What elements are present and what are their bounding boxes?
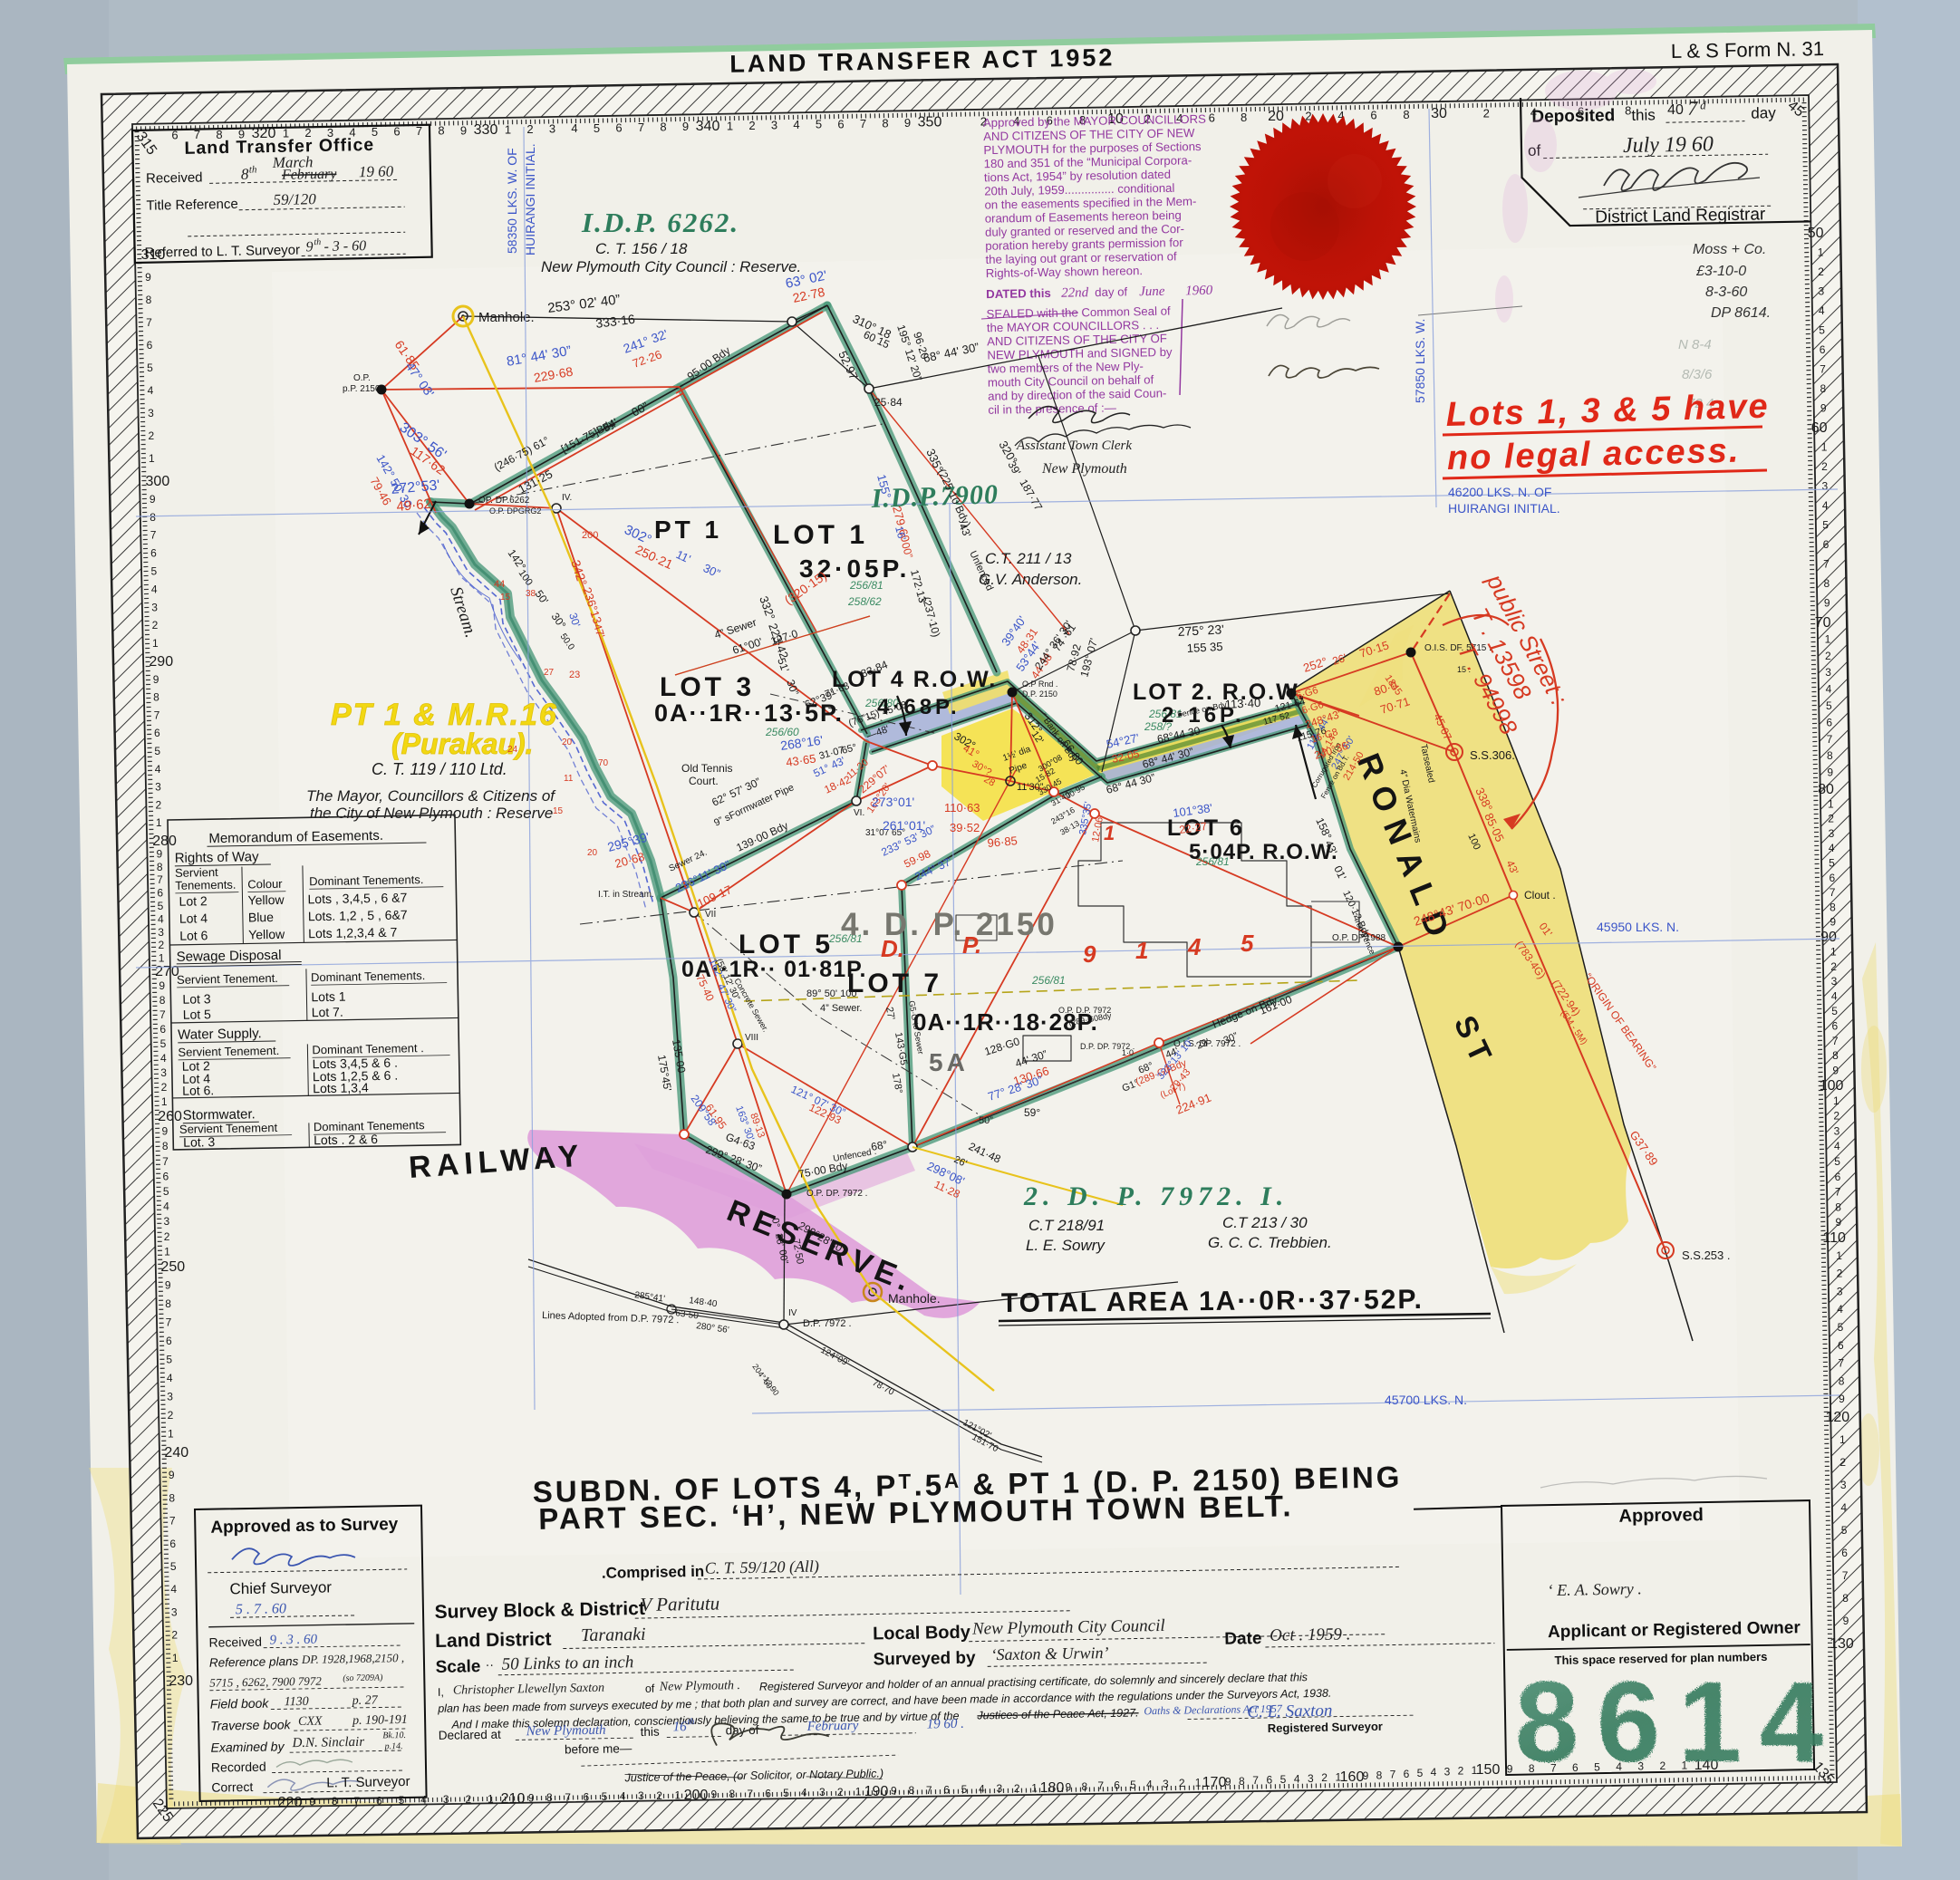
svg-text:5: 5 <box>1280 1773 1287 1786</box>
svg-text:4: 4 <box>1831 990 1838 1003</box>
svg-text:15: 15 <box>500 593 511 603</box>
svg-text:2: 2 <box>1458 1765 1464 1778</box>
svg-text:1: 1 <box>1825 632 1831 645</box>
svg-text:2: 2 <box>526 122 533 136</box>
svg-text:5: 5 <box>163 1185 169 1198</box>
svg-text:4: 4 <box>1819 304 1825 317</box>
svg-text:Received: Received <box>146 170 203 187</box>
svg-text:‘ E. A. Sowry .: ‘ E. A. Sowry . <box>1547 1579 1642 1599</box>
svg-text:5: 5 <box>602 1790 608 1803</box>
svg-text:4: 4 <box>1826 683 1832 696</box>
svg-text:4: 4 <box>571 121 577 135</box>
svg-text:Rights-of-Way shown hereon.: Rights-of-Way shown hereon. <box>986 264 1143 280</box>
svg-text:2: 2 <box>1830 960 1837 973</box>
svg-text:C. L. Saxton: C. L. Saxton <box>1247 1702 1332 1722</box>
svg-text:Colour: Colour <box>247 877 283 892</box>
svg-text:9: 9 <box>1843 1615 1849 1627</box>
svg-text:5: 5 <box>1826 699 1832 712</box>
svg-text:I.D.P. 6262.: I.D.P. 6262. <box>581 207 739 238</box>
svg-text:District Land Registrar: District Land Registrar <box>1595 205 1766 227</box>
svg-text:New Plymouth .: New Plymouth . <box>659 1679 740 1694</box>
svg-text:p.P. 2150: p.P. 2150 <box>343 384 381 394</box>
svg-text:5·04P. R.O.W.: 5·04P. R.O.W. <box>1189 840 1338 864</box>
svg-text:150: 150 <box>1476 1762 1501 1778</box>
svg-text:Blue: Blue <box>248 910 275 924</box>
svg-text:IV.: IV. <box>562 493 572 503</box>
svg-text:7: 7 <box>1687 97 1698 120</box>
svg-text:.Comprised in: .Comprised in <box>602 1563 705 1582</box>
svg-text:6: 6 <box>154 727 160 739</box>
svg-text:8: 8 <box>882 116 888 130</box>
svg-text:9: 9 <box>309 1796 315 1808</box>
svg-text:6: 6 <box>166 1335 172 1347</box>
svg-text:330: 330 <box>474 122 498 138</box>
svg-text:9: 9 <box>1830 916 1836 929</box>
svg-text:G. C. C. Trebbien.: G. C. C. Trebbien. <box>1208 1234 1332 1251</box>
svg-text:275° 23': 275° 23' <box>1177 622 1224 639</box>
svg-text:8: 8 <box>1839 1374 1845 1387</box>
svg-text:59/120: 59/120 <box>273 190 316 208</box>
svg-text:258/62: 258/62 <box>847 595 882 608</box>
svg-text:7: 7 <box>150 529 157 542</box>
svg-text:February: February <box>806 1719 859 1734</box>
svg-text:9: 9 <box>1839 1393 1845 1405</box>
svg-text:3: 3 <box>1840 1479 1847 1491</box>
svg-text:50: 50 <box>1808 226 1824 241</box>
svg-text:28': 28' <box>773 1232 786 1247</box>
svg-text:5: 5 <box>961 1783 968 1796</box>
svg-text:273°01': 273°01' <box>872 795 914 809</box>
svg-text:O.P. DPGRG2: O.P. DPGRG2 <box>489 506 541 516</box>
svg-text:The Mayor, Councillors & Citiz: The Mayor, Councillors & Citizens of <box>306 787 556 805</box>
svg-text:2: 2 <box>1659 1759 1666 1772</box>
svg-text:C. T. 119 / 110 Ltd.: C. T. 119 / 110 Ltd. <box>372 760 507 778</box>
svg-text:300: 300 <box>146 474 170 489</box>
svg-text:4: 4 <box>148 384 154 397</box>
svg-text:L. E. Sowry: L. E. Sowry <box>1026 1237 1106 1254</box>
svg-text:60: 60 <box>1811 420 1828 436</box>
svg-text:New Plymouth: New Plymouth <box>1041 461 1127 477</box>
svg-text:7: 7 <box>638 121 644 134</box>
svg-text:8: 8 <box>157 861 163 873</box>
svg-text:6: 6 <box>169 1538 176 1550</box>
svg-text:3: 3 <box>148 407 154 419</box>
svg-text:Recorded: Recorded <box>211 1759 266 1775</box>
svg-text:6: 6 <box>1114 1779 1120 1792</box>
svg-text:2: 2 <box>168 1409 174 1422</box>
svg-text:170: 170 <box>1202 1775 1227 1790</box>
svg-text:1: 1 <box>1828 797 1834 810</box>
svg-text:7: 7 <box>1838 1357 1844 1370</box>
svg-text:210: 210 <box>501 1791 526 1807</box>
svg-text:20: 20 <box>1268 109 1284 124</box>
svg-text:45950 LKS. N.: 45950 LKS. N. <box>1597 920 1679 934</box>
svg-text:C. T. 156 / 18: C. T. 156 / 18 <box>595 240 688 257</box>
svg-text:6: 6 <box>1841 1547 1848 1559</box>
svg-text:3: 3 <box>167 1391 173 1403</box>
svg-text:110·63: 110·63 <box>944 801 980 815</box>
svg-text:5: 5 <box>158 900 164 912</box>
svg-text:1: 1 <box>168 1428 174 1441</box>
svg-text:80: 80 <box>1818 782 1834 797</box>
svg-text:110: 110 <box>1822 1230 1846 1246</box>
svg-text:D.P. 7972 .: D.P. 7972 . <box>803 1318 852 1329</box>
svg-text:4: 4 <box>1834 1140 1840 1152</box>
svg-text:5: 5 <box>783 1787 789 1799</box>
svg-text:8: 8 <box>159 994 166 1007</box>
svg-text:1: 1 <box>1031 1781 1038 1794</box>
svg-text:6: 6 <box>943 1783 950 1796</box>
svg-text:7: 7 <box>1252 1774 1259 1787</box>
svg-text:1: 1 <box>149 452 155 465</box>
svg-text:290: 290 <box>149 654 173 670</box>
svg-text:DATED this: DATED this <box>986 286 1051 301</box>
svg-text:8: 8 <box>1827 749 1833 762</box>
svg-text:8: 8 <box>165 1297 171 1310</box>
svg-text:Lot 4: Lot 4 <box>179 911 208 926</box>
svg-text:Traverse book: Traverse book <box>210 1717 292 1733</box>
svg-text:8: 8 <box>153 691 159 704</box>
svg-text:Assistant Town Clerk: Assistant Town Clerk <box>1016 439 1132 453</box>
svg-text:5: 5 <box>399 1794 405 1807</box>
svg-text:Court.: Court. <box>689 775 719 787</box>
svg-text:1: 1 <box>1335 1771 1341 1784</box>
svg-text:4: 4 <box>1829 842 1835 854</box>
svg-text:9: 9 <box>150 493 156 506</box>
svg-text:Lots 1,3,4: Lots 1,3,4 <box>313 1080 369 1095</box>
svg-text:340: 340 <box>696 119 720 134</box>
svg-text:- 3 - 60: - 3 - 60 <box>323 238 366 255</box>
svg-text:8-3-60: 8-3-60 <box>1705 284 1747 300</box>
svg-text:Reference plans: Reference plans <box>209 1654 299 1670</box>
svg-text:p. 190-191: p. 190-191 <box>352 1713 408 1728</box>
svg-text:96·85: 96·85 <box>987 834 1018 850</box>
svg-text:8: 8 <box>1832 1049 1839 1062</box>
svg-text:5: 5 <box>166 1354 172 1366</box>
svg-text:July 19 60: July 19 60 <box>1623 132 1714 158</box>
svg-text:TOTAL AREA 1A··0R··37·52P.: TOTAL AREA 1A··0R··37·52P. <box>1001 1285 1424 1318</box>
svg-text:9: 9 <box>165 1279 171 1292</box>
svg-text:6: 6 <box>1209 111 1215 124</box>
svg-text:5: 5 <box>170 1560 177 1573</box>
svg-text:before me—: before me— <box>565 1741 632 1756</box>
svg-text:Servient Tenement.: Servient Tenement. <box>177 971 278 987</box>
svg-text:7: 7 <box>169 1515 176 1528</box>
svg-text:Servient Tenement.: Servient Tenement. <box>178 1044 279 1059</box>
svg-text:LOT 7: LOT 7 <box>847 969 942 998</box>
svg-text:9: 9 <box>1836 1216 1842 1229</box>
svg-text:7: 7 <box>157 873 163 886</box>
svg-text:3: 3 <box>443 1793 449 1806</box>
svg-text:5: 5 <box>1834 1155 1840 1168</box>
svg-text:8: 8 <box>660 121 666 134</box>
svg-text:2: 2 <box>152 619 159 631</box>
svg-text:6: 6 <box>159 1023 166 1036</box>
svg-text:3: 3 <box>158 926 164 939</box>
svg-text:7: 7 <box>565 1791 571 1804</box>
svg-text:Survey Block & District: Survey Block & District <box>434 1598 645 1623</box>
svg-text:1: 1 <box>172 1652 179 1664</box>
svg-text:7: 7 <box>416 124 422 138</box>
svg-text:CXX: CXX <box>298 1715 323 1729</box>
svg-text:February: February <box>281 167 338 183</box>
svg-text:Date: Date <box>1224 1629 1262 1649</box>
svg-text:27: 27 <box>544 668 555 678</box>
svg-text:4: 4 <box>170 1583 177 1596</box>
svg-text:59°: 59° <box>1024 1106 1040 1119</box>
svg-text:7: 7 <box>162 1155 169 1168</box>
svg-text:DP 8614.: DP 8614. <box>1711 305 1771 321</box>
svg-text:1: 1 <box>1818 246 1824 259</box>
svg-text:8: 8 <box>1835 1200 1841 1213</box>
svg-text:6: 6 <box>1838 1339 1844 1352</box>
svg-text:3: 3 <box>1821 480 1828 493</box>
svg-text:4: 4 <box>160 1052 167 1065</box>
svg-text:155 35: 155 35 <box>1186 640 1222 655</box>
svg-text:9: 9 <box>1832 1065 1839 1077</box>
svg-text:5: 5 <box>1841 1524 1848 1537</box>
svg-text:Dominant Tenement .: Dominant Tenement . <box>312 1041 424 1056</box>
svg-text:230: 230 <box>169 1673 193 1689</box>
svg-text:9: 9 <box>891 1785 897 1798</box>
svg-text:9: 9 <box>460 123 467 137</box>
svg-text:9: 9 <box>1225 1775 1231 1788</box>
svg-text:p. 27: p. 27 <box>352 1693 379 1708</box>
svg-text:1960: 1960 <box>1185 284 1213 299</box>
svg-text:5: 5 <box>160 1037 167 1050</box>
svg-text:9: 9 <box>1083 940 1096 968</box>
svg-text:I.T. in Stream.: I.T. in Stream. <box>598 890 654 900</box>
svg-text:30: 30 <box>1431 106 1447 121</box>
svg-text:3: 3 <box>163 1215 169 1228</box>
svg-text:8: 8 <box>332 1795 338 1808</box>
svg-text:3: 3 <box>1834 1124 1840 1137</box>
svg-text:Lot. 3: Lot. 3 <box>183 1134 216 1150</box>
svg-text:IV: IV <box>788 1308 797 1318</box>
svg-text:8: 8 <box>1823 577 1830 590</box>
svg-text:2. D. P. 7972. I.: 2. D. P. 7972. I. <box>1023 1181 1289 1211</box>
svg-text:D.N. Sinclair: D.N. Sinclair <box>291 1735 364 1750</box>
svg-text:8: 8 <box>1403 108 1409 121</box>
svg-text:7: 7 <box>1835 1186 1841 1199</box>
svg-text:24: 24 <box>507 745 518 755</box>
svg-text:Dominant Tenements.: Dominant Tenements. <box>309 873 423 888</box>
svg-text:49·62: 49·62 <box>396 497 432 515</box>
svg-text:40: 40 <box>1667 102 1684 118</box>
svg-text:3: 3 <box>819 1786 826 1798</box>
svg-text:‘Saxton & Urwin’: ‘Saxton & Urwin’ <box>990 1644 1108 1663</box>
svg-text:New Plymouth: New Plymouth <box>526 1723 606 1740</box>
svg-text:8: 8 <box>1842 1592 1849 1605</box>
svg-text:V Paritutu: V Paritutu <box>640 1593 719 1616</box>
svg-text:Moss + Co.: Moss + Co. <box>1693 242 1766 257</box>
svg-text:250: 250 <box>160 1259 185 1275</box>
svg-text:2: 2 <box>164 1230 170 1243</box>
svg-text:2: 2 <box>748 119 755 132</box>
svg-text:4. D. P. 2150: 4. D. P. 2150 <box>841 907 1057 942</box>
svg-text:Clout .: Clout . <box>1524 889 1556 901</box>
svg-text:3: 3 <box>1831 975 1838 988</box>
svg-text:Tenements.: Tenements. <box>175 878 236 892</box>
svg-text:6: 6 <box>393 125 400 139</box>
svg-text:LOT 5: LOT 5 <box>739 930 834 959</box>
svg-text:(Purakau).: (Purakau). <box>391 728 533 760</box>
svg-text:Dominant Tenements.: Dominant Tenements. <box>311 969 425 984</box>
svg-text:6: 6 <box>1404 1768 1410 1780</box>
svg-text:6: 6 <box>147 339 153 352</box>
svg-text:9: 9 <box>904 116 911 130</box>
svg-text:8: 8 <box>150 511 156 524</box>
svg-text:Lots 1: Lots 1 <box>311 989 346 1005</box>
svg-text:3: 3 <box>996 1782 1002 1795</box>
svg-text:2: 2 <box>1818 265 1824 278</box>
svg-text:23: 23 <box>569 670 580 680</box>
svg-text:Scale: Scale <box>435 1657 480 1677</box>
svg-text:5: 5 <box>1831 1005 1838 1017</box>
svg-text:Lots. 1,2 , 5 , 6&7: Lots. 1,2 , 5 , 6&7 <box>308 907 408 923</box>
svg-text:7: 7 <box>1832 1035 1839 1047</box>
svg-text:5: 5 <box>147 362 153 374</box>
svg-text:8/3/6: 8/3/6 <box>1682 367 1713 382</box>
svg-text:New Plymouth City Council: New Plymouth City Council <box>971 1616 1165 1639</box>
svg-text:S.S.306.: S.S.306. <box>1470 748 1515 762</box>
svg-text:6: 6 <box>1835 1171 1841 1183</box>
svg-text:day of: day of <box>1095 284 1128 299</box>
svg-text:no legal access.: no legal access. <box>1446 432 1740 477</box>
svg-text:240: 240 <box>164 1445 188 1461</box>
svg-text:D.P. DP. 7972 .: D.P. DP. 7972 . <box>1080 1042 1134 1051</box>
svg-text:VI.: VI. <box>854 808 864 818</box>
svg-text:I,: I, <box>438 1686 444 1699</box>
svg-text:50”: 50” <box>979 1115 993 1126</box>
svg-text:Lot 6.: Lot 6. <box>182 1083 214 1098</box>
svg-text:8: 8 <box>546 1791 553 1804</box>
svg-text:2: 2 <box>656 1789 662 1802</box>
svg-text:4: 4 <box>151 583 158 595</box>
svg-text:2: 2 <box>1483 106 1490 120</box>
svg-text:Correct: Correct <box>211 1779 253 1795</box>
svg-text:Servient Tenement: Servient Tenement <box>179 1121 278 1136</box>
svg-text:220: 220 <box>278 1795 303 1810</box>
svg-text:1: 1 <box>1830 945 1837 958</box>
svg-text:19 60 .: 19 60 . <box>926 1717 964 1732</box>
svg-text:Local Body: Local Body <box>873 1623 971 1644</box>
svg-text:70: 70 <box>1815 615 1831 631</box>
svg-text:8: 8 <box>438 124 444 138</box>
svg-text:9: 9 <box>153 673 159 686</box>
svg-text:6: 6 <box>1266 1774 1272 1787</box>
svg-text:3: 3 <box>151 601 158 613</box>
svg-text:this: this <box>1631 106 1656 123</box>
svg-text:2: 2 <box>159 939 165 951</box>
svg-text:PT 1: PT 1 <box>654 516 722 544</box>
svg-text:Lot 5: Lot 5 <box>183 1007 212 1022</box>
svg-text:4: 4 <box>1822 499 1829 512</box>
svg-text:1: 1 <box>159 952 165 965</box>
svg-text:4: 4 <box>1187 933 1202 960</box>
svg-text:2: 2 <box>171 1629 178 1642</box>
svg-text:57850 LKS. W.: 57850 LKS. W. <box>1413 319 1427 403</box>
svg-text:6: 6 <box>583 1790 589 1803</box>
svg-text:1: 1 <box>1836 1249 1842 1262</box>
svg-text:39·52: 39·52 <box>950 821 980 834</box>
svg-text:38: 38 <box>526 589 536 599</box>
svg-text:Yellow: Yellow <box>247 892 285 908</box>
svg-text:4” Sewer.: 4” Sewer. <box>820 1003 862 1014</box>
svg-text:C. T. 59/120 (All): C. T. 59/120 (All) <box>705 1557 820 1578</box>
svg-text:2: 2 <box>1321 1771 1328 1784</box>
svg-text:160: 160 <box>1340 1769 1365 1785</box>
svg-text:O.P. DP. 7972 .: O.P. DP. 7972 . <box>806 1189 867 1199</box>
svg-text:P.: P. <box>962 931 981 959</box>
svg-text:5: 5 <box>1829 857 1835 870</box>
svg-text:27': 27' <box>883 1006 896 1020</box>
svg-text:70: 70 <box>598 758 609 768</box>
svg-text:1: 1 <box>1104 822 1115 844</box>
svg-text:Yellow: Yellow <box>248 927 285 942</box>
svg-text:6: 6 <box>1820 343 1826 356</box>
svg-text:2: 2 <box>465 1793 471 1806</box>
svg-text:2: 2 <box>1828 813 1834 825</box>
svg-text:6: 6 <box>765 1787 771 1799</box>
svg-text:20: 20 <box>562 738 573 747</box>
svg-text:2: 2 <box>156 798 162 811</box>
svg-text:Lots 1,2,3,4 & 7: Lots 1,2,3,4 & 7 <box>308 925 398 941</box>
svg-text:Approved: Approved <box>1618 1505 1704 1527</box>
svg-text:3: 3 <box>155 781 161 794</box>
svg-text:25·84: 25·84 <box>874 396 903 409</box>
svg-text:8: 8 <box>729 1788 735 1800</box>
svg-text:7: 7 <box>860 117 866 130</box>
svg-text:9: 9 <box>682 120 689 133</box>
svg-text:1: 1 <box>1821 441 1828 454</box>
svg-text:2: 2 <box>837 1786 844 1798</box>
svg-text:Referred to L. T. Surveyor: Referred to L. T. Surveyor <box>144 242 300 260</box>
svg-text:7: 7 <box>1842 1569 1849 1582</box>
svg-text:1: 1 <box>1135 937 1148 964</box>
svg-text:Lot 3: Lot 3 <box>182 991 211 1007</box>
svg-text:Registered Surveyor: Registered Surveyor <box>1268 1720 1383 1735</box>
svg-text:3: 3 <box>549 122 555 136</box>
svg-text:2: 2 <box>1837 1268 1843 1280</box>
svg-text:7: 7 <box>146 316 152 329</box>
svg-text:7: 7 <box>1823 558 1830 571</box>
svg-text:6: 6 <box>615 121 622 134</box>
svg-text:3: 3 <box>1819 285 1825 298</box>
svg-text:Lot 7.: Lot 7. <box>312 1005 343 1020</box>
svg-text:3: 3 <box>1837 1285 1843 1297</box>
svg-text:22nd: 22nd <box>1061 285 1089 301</box>
svg-text:··: ·· <box>485 1657 494 1672</box>
svg-text:th: th <box>314 237 321 247</box>
svg-text:Surveyed by: Surveyed by <box>873 1649 976 1670</box>
svg-text:7: 7 <box>1820 363 1826 376</box>
svg-text:9: 9 <box>1820 402 1827 415</box>
svg-text:9: 9 <box>157 847 163 860</box>
svg-text:9: 9 <box>169 1469 175 1481</box>
svg-text:June: June <box>1139 284 1165 299</box>
svg-text:200: 200 <box>582 530 598 541</box>
svg-text:3: 3 <box>1444 1765 1451 1778</box>
svg-text:19 60: 19 60 <box>359 162 394 180</box>
svg-text:89° 50' 100: 89° 50' 100 <box>806 988 856 999</box>
svg-text:9: 9 <box>528 1792 535 1805</box>
svg-text:HUIRANGI INITIAL.: HUIRANGI INITIAL. <box>523 143 537 255</box>
svg-text:3: 3 <box>1829 827 1835 840</box>
svg-text:4: 4 <box>793 118 799 131</box>
svg-text:Field book: Field book <box>210 1696 270 1711</box>
svg-text:Christopher Llewellyn Saxton: Christopher Llewellyn Saxton <box>453 1682 604 1698</box>
